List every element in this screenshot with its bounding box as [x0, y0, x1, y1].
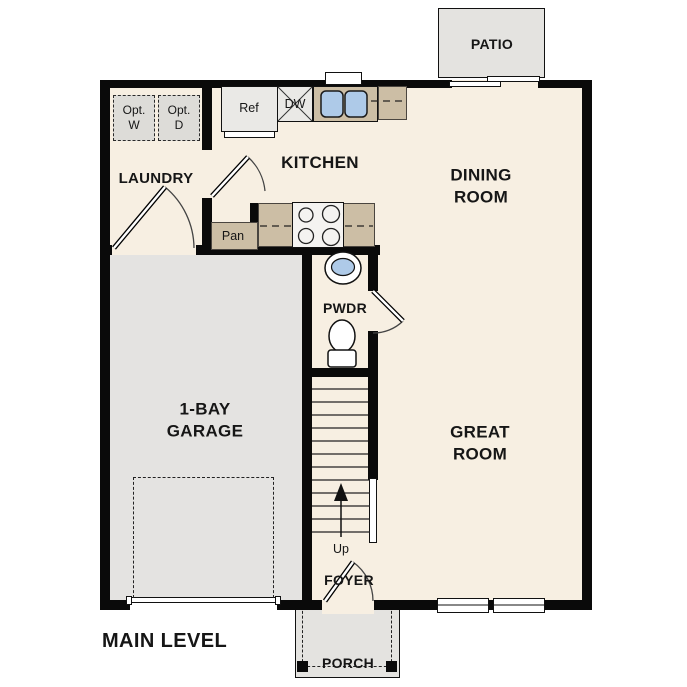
powder-sink-icon	[325, 252, 361, 284]
optional-washer-label: Opt. W	[123, 103, 146, 133]
dining-room-label: DINING ROOM	[450, 165, 511, 210]
stairs-up-label: Up	[333, 541, 349, 558]
refrigerator-label: Ref	[239, 100, 258, 117]
stairs-up-arrow-icon	[334, 483, 348, 537]
optional-dryer-label: Opt. D	[168, 103, 191, 133]
patio-label: PATIO	[471, 35, 513, 53]
porch-label: PORCH	[322, 654, 374, 672]
toilet-icon	[328, 320, 356, 367]
kitchen-door	[212, 157, 265, 196]
range-burners-icon	[299, 206, 340, 246]
dishwasher-label: DW	[285, 96, 306, 113]
kitchen-sink-icon	[321, 91, 367, 117]
plan-title: MAIN LEVEL	[102, 630, 227, 653]
laundry-label: LAUNDRY	[119, 169, 194, 189]
garage-label: 1-BAY GARAGE	[167, 399, 243, 444]
powder-room-label: PWDR	[323, 299, 367, 317]
foyer-label: FOYER	[324, 571, 374, 589]
floor-plan: PATIO Opt. W Opt. D LAUNDRY Ref DW KITCH…	[0, 0, 687, 687]
great-room-label: GREAT ROOM	[450, 422, 510, 467]
powder-door	[373, 291, 403, 333]
pantry-label: Pan	[222, 228, 244, 245]
laundry-door	[114, 187, 194, 248]
kitchen-label: KITCHEN	[281, 152, 359, 174]
